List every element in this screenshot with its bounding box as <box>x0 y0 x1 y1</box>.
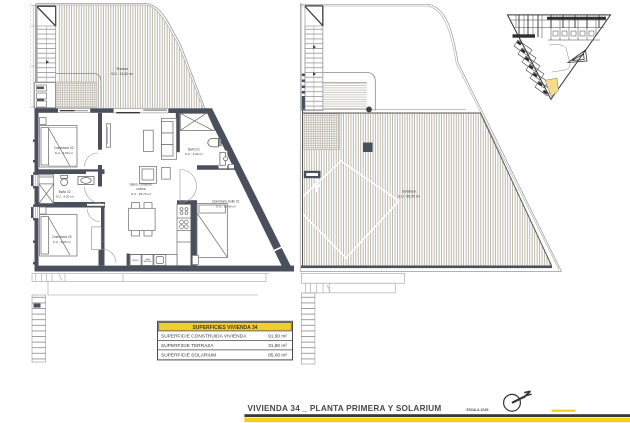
svg-text:Salón, comedor,: Salón, comedor, <box>129 183 152 187</box>
svg-text:S.U.: 8,00 m²: S.U.: 8,00 m² <box>53 240 71 244</box>
svg-text:SUPERFICIE SOLARIUM: SUPERFICIE SOLARIUM <box>161 353 216 359</box>
svg-text:S.U.: 9,00 m²: S.U.: 9,00 m² <box>55 151 73 155</box>
svg-text:31,80 m²: 31,80 m² <box>268 343 287 349</box>
svg-text:Baño 01: Baño 01 <box>188 148 200 152</box>
svg-text:Dormitorio 02: Dormitorio 02 <box>54 146 73 150</box>
svg-text:VAJILLAS: VAJILLAS <box>143 260 152 263</box>
svg-text:Terraza: Terraza <box>116 67 128 71</box>
svg-text:S.U.: 85,00 m²: S.U.: 85,00 m² <box>398 195 421 199</box>
svg-text:85,00 m²: 85,00 m² <box>268 353 287 359</box>
svg-text:cocina: cocina <box>136 187 145 191</box>
svg-text:S.U.: 28,70 m²: S.U.: 28,70 m² <box>131 192 151 196</box>
svg-text:S.U.: 4,00 m²: S.U.: 4,00 m² <box>185 152 203 156</box>
svg-text:VIVIENDA 34 _ PLANTA PRIMERA Y: VIVIENDA 34 _ PLANTA PRIMERA Y SOLARIUM <box>248 404 442 413</box>
svg-text:FRIGO: FRIGO <box>132 260 139 262</box>
svg-text:Dormitorio Suite 01: Dormitorio Suite 01 <box>212 200 240 204</box>
svg-text:SUPERFICIE TERRAZA: SUPERFICIE TERRAZA <box>161 343 214 349</box>
svg-text:SUPERFICIE CONSTRUIDA VIVIENDA: SUPERFICIE CONSTRUIDA VIVIENDA <box>161 334 247 340</box>
svg-text:S.U.: 4,20 m²: S.U.: 4,20 m² <box>56 195 74 199</box>
svg-text:91,90 m²: 91,90 m² <box>268 334 287 340</box>
svg-text:ESCALA 1/100: ESCALA 1/100 <box>467 408 489 412</box>
svg-text:S.U.: 16,40 m²: S.U.: 16,40 m² <box>216 204 236 208</box>
svg-text:S.U.: 31,80 m²: S.U.: 31,80 m² <box>111 72 134 76</box>
svg-text:Dormitorio 03: Dormitorio 03 <box>52 235 71 239</box>
svg-text:SUPERFICIES VIVIENDA 34: SUPERFICIES VIVIENDA 34 <box>192 325 257 331</box>
svg-text:Solarium: Solarium <box>402 190 416 194</box>
svg-text:Baño 02: Baño 02 <box>59 190 71 194</box>
